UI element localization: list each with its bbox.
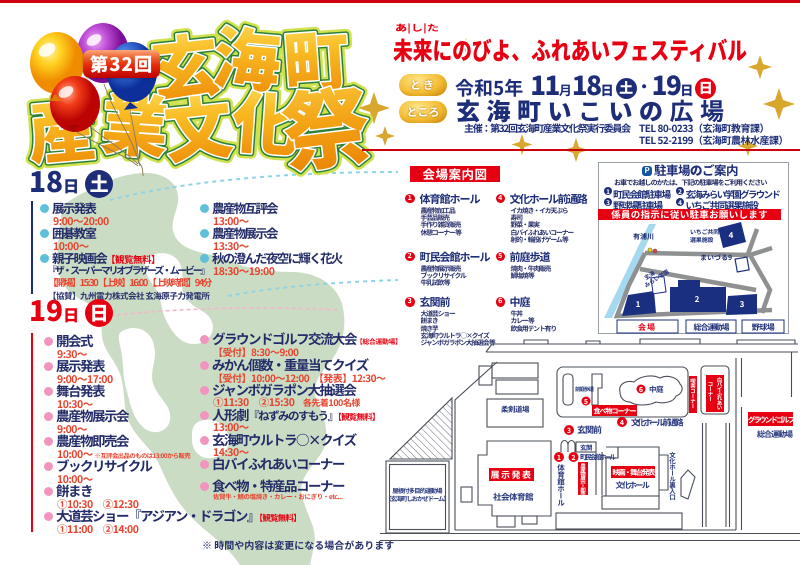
svg-text:総合運動場: 総合運動場 xyxy=(694,322,730,333)
svg-text:5: 5 xyxy=(584,397,588,407)
svg-text:文化ホール裏入口: 文化ホール裏入口 xyxy=(668,452,678,501)
svg-text:柔剣道場: 柔剣道場 xyxy=(501,404,530,415)
svg-text:2: 2 xyxy=(571,453,575,463)
svg-text:会場: 会場 xyxy=(638,322,656,333)
svg-text:3: 3 xyxy=(740,299,745,310)
svg-text:前庭歩道: 前庭歩道 xyxy=(575,385,595,393)
svg-text:玄関: 玄関 xyxy=(580,442,593,452)
svg-text:まいづる9: まいづる9 xyxy=(700,253,732,263)
svg-text:社会体育館: 社会体育館 xyxy=(493,491,534,503)
svg-text:コーナー: コーナー xyxy=(707,381,715,402)
svg-text:4: 4 xyxy=(620,418,624,428)
svg-text:1: 1 xyxy=(557,453,561,463)
svg-text:グラウンドゴルフ: グラウンドゴルフ xyxy=(748,415,795,426)
svg-text:3: 3 xyxy=(567,426,571,436)
svg-text:1: 1 xyxy=(636,299,641,310)
svg-text:6: 6 xyxy=(639,385,643,395)
svg-text:農産物展示・即売: 農産物展示・即売 xyxy=(579,463,587,497)
svg-text:体育館ホール: 体育館ホール xyxy=(556,464,567,507)
svg-text:文化ホール前通路: 文化ホール前通路 xyxy=(631,417,684,429)
svg-text:食べ物コーナー: 食べ物コーナー xyxy=(594,407,637,417)
svg-text:文: 文 xyxy=(159,72,237,178)
svg-text:4: 4 xyxy=(729,230,734,241)
svg-text:未来にのびよ、ふれあいフェスティバル: 未来にのびよ、ふれあいフェスティバル xyxy=(393,33,747,68)
svg-text:（玄海町しおかぜドーム）: （玄海町しおかぜドーム） xyxy=(385,494,448,503)
svg-text:2: 2 xyxy=(695,294,700,305)
svg-text:文化ホール: 文化ホール xyxy=(616,480,650,491)
svg-text:祭: 祭 xyxy=(275,56,376,185)
svg-text:中庭: 中庭 xyxy=(649,384,664,395)
svg-text:有浦川: 有浦川 xyxy=(633,232,654,242)
svg-text:喫茶コーナー: 喫茶コーナー xyxy=(689,378,697,409)
svg-text:展示発表: 展示発表 xyxy=(490,468,532,481)
svg-text:選果施設: 選果施設 xyxy=(690,235,713,244)
svg-text:映画・舞台発表: 映画・舞台発表 xyxy=(612,467,655,478)
svg-text:玄関前: 玄関前 xyxy=(577,423,602,436)
svg-text:野球場: 野球場 xyxy=(752,322,775,333)
svg-text:白バイふれあい: 白バイふれあい xyxy=(716,377,724,411)
svg-text:総合運動場: 総合運動場 xyxy=(757,429,793,440)
svg-text:町民会館ホール: 町民会館ホール xyxy=(580,452,616,462)
